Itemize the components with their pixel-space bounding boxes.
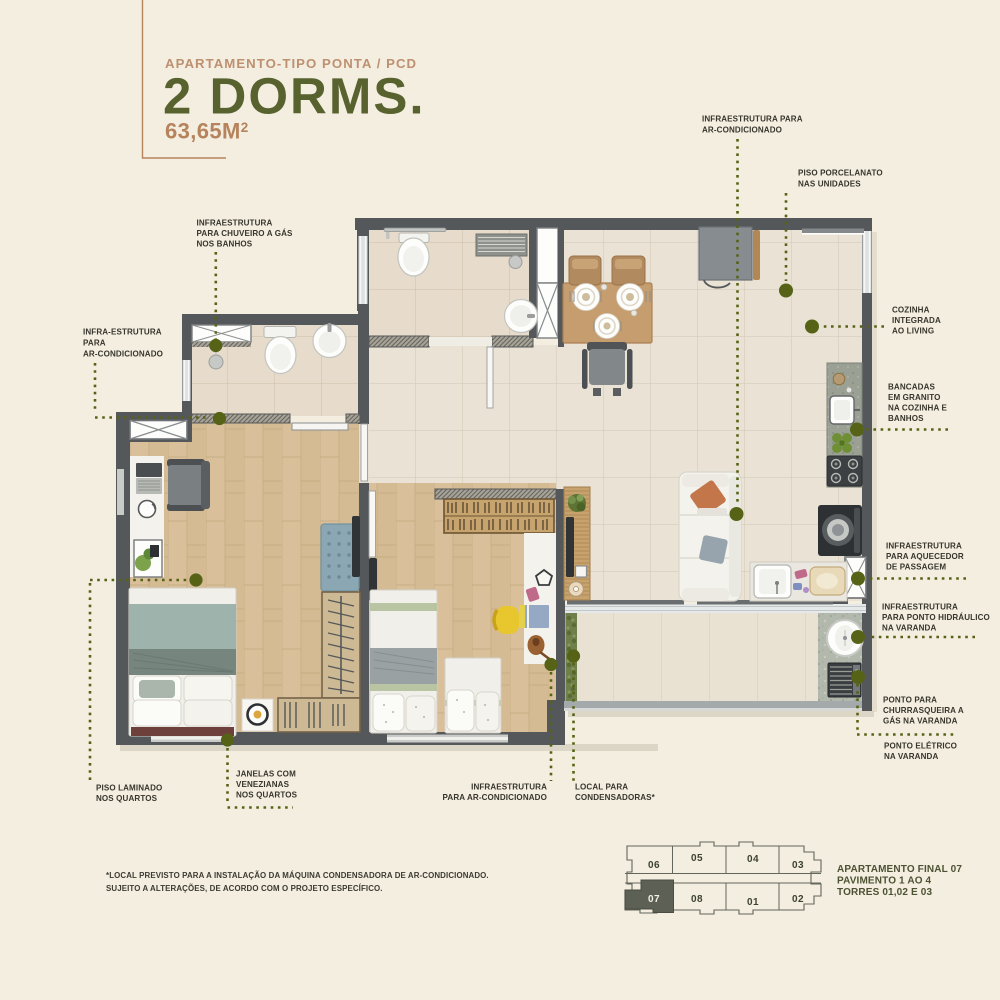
svg-text:CHURRASQUEIRA A: CHURRASQUEIRA A (883, 706, 964, 715)
svg-text:01: 01 (747, 897, 759, 908)
svg-text:AR-CONDICIONADO: AR-CONDICIONADO (702, 126, 782, 135)
svg-text:AO LIVING: AO LIVING (892, 327, 934, 336)
svg-text:*LOCAL PREVISTO PARA A INSTALA: *LOCAL PREVISTO PARA A INSTALAÇÃO DA MÁQ… (106, 871, 489, 880)
svg-text:PARA CHUVEIRO A GÁS: PARA CHUVEIRO A GÁS (197, 229, 294, 238)
svg-text:APARTAMENTO FINAL 07: APARTAMENTO FINAL 07 (837, 864, 962, 875)
svg-text:NA COZINHA E: NA COZINHA E (888, 404, 947, 413)
svg-text:NA VARANDA: NA VARANDA (882, 624, 936, 633)
svg-text:PARA AR-CONDICIONADO: PARA AR-CONDICIONADO (443, 793, 547, 802)
svg-text:NOS QUARTOS: NOS QUARTOS (96, 794, 158, 803)
svg-text:PONTO ELÉTRICO: PONTO ELÉTRICO (884, 742, 957, 751)
svg-text:JANELAS COM: JANELAS COM (236, 770, 296, 779)
svg-text:EM GRANITO: EM GRANITO (888, 393, 940, 402)
svg-text:PISO PORCELANATO: PISO PORCELANATO (798, 169, 883, 178)
svg-text:GÁS NA VARANDA: GÁS NA VARANDA (883, 717, 958, 726)
svg-text:DE PASSAGEM: DE PASSAGEM (886, 563, 946, 572)
svg-text:02: 02 (792, 894, 804, 905)
svg-text:PAVIMENTO 1 AO 4: PAVIMENTO 1 AO 4 (837, 876, 932, 887)
svg-text:PONTO PARA: PONTO PARA (883, 696, 937, 705)
svg-text:BANHOS: BANHOS (888, 414, 924, 423)
svg-text:LOCAL PARA: LOCAL PARA (575, 783, 628, 792)
svg-text:NOS BANHOS: NOS BANHOS (197, 240, 253, 249)
svg-text:INFRAESTRUTURA: INFRAESTRUTURA (471, 783, 547, 792)
svg-text:NAS UNIDADES: NAS UNIDADES (798, 180, 861, 189)
svg-text:CONDENSADORAS*: CONDENSADORAS* (575, 793, 656, 802)
svg-text:06: 06 (648, 860, 660, 871)
svg-text:2 DORMS.: 2 DORMS. (163, 68, 426, 125)
svg-text:BANCADAS: BANCADAS (888, 383, 936, 392)
svg-text:05: 05 (691, 853, 703, 864)
svg-text:NA VARANDA: NA VARANDA (884, 752, 938, 761)
svg-text:04: 04 (747, 854, 759, 865)
svg-text:PARA AQUECEDOR: PARA AQUECEDOR (886, 552, 964, 561)
svg-text:INFRAESTRUTURA: INFRAESTRUTURA (886, 542, 962, 551)
svg-text:INFRA-ESTRUTURA: INFRA-ESTRUTURA (83, 328, 162, 337)
svg-text:08: 08 (691, 894, 703, 905)
svg-text:NOS QUARTOS: NOS QUARTOS (236, 791, 298, 800)
svg-text:PARA: PARA (83, 339, 106, 348)
svg-text:VENEZIANAS: VENEZIANAS (236, 780, 290, 789)
svg-text:AR-CONDICIONADO: AR-CONDICIONADO (83, 350, 163, 359)
svg-text:PARA PONTO HIDRÁULICO: PARA PONTO HIDRÁULICO (882, 613, 990, 622)
svg-text:03: 03 (792, 860, 804, 871)
svg-text:INFRAESTRUTURA: INFRAESTRUTURA (197, 219, 273, 228)
svg-text:INFRAESTRUTURA: INFRAESTRUTURA (882, 603, 958, 612)
svg-text:SUJEITO A ALTERAÇÕES, DE ACORD: SUJEITO A ALTERAÇÕES, DE ACORDO COM O PR… (106, 884, 383, 893)
svg-text:07: 07 (648, 894, 660, 905)
svg-text:INFRAESTRUTURA PARA: INFRAESTRUTURA PARA (702, 115, 803, 124)
svg-text:INTEGRADA: INTEGRADA (892, 316, 941, 325)
svg-text:COZINHA: COZINHA (892, 306, 930, 315)
svg-text:63,65M2: 63,65M2 (165, 119, 249, 144)
svg-text:PISO LAMINADO: PISO LAMINADO (96, 784, 162, 793)
svg-text:TORRES 01,02 E 03: TORRES 01,02 E 03 (837, 887, 932, 898)
